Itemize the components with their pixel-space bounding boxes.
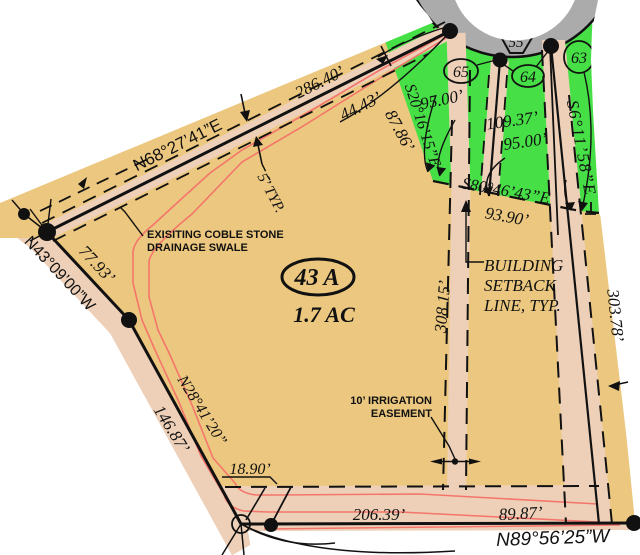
svg-text:64: 64 <box>520 69 536 86</box>
svg-text:65: 65 <box>453 64 469 81</box>
svg-text:BUILDING: BUILDING <box>484 256 563 275</box>
svg-text:43 A: 43 A <box>293 265 339 291</box>
svg-text:206.39’: 206.39’ <box>353 505 406 524</box>
svg-text:EASEMENT: EASEMENT <box>371 408 432 420</box>
svg-text:1.7 AC: 1.7 AC <box>293 302 355 327</box>
svg-text:EXISITING COBLE STONE: EXISITING COBLE STONE <box>147 229 284 241</box>
svg-text:N89°56’25”W: N89°56’25”W <box>496 526 612 551</box>
svg-text:LINE, TYP.: LINE, TYP. <box>483 296 561 315</box>
svg-text:89.87’: 89.87’ <box>498 503 543 524</box>
svg-text:18.90’: 18.90’ <box>229 461 270 478</box>
svg-text:10’ IRRIGATION: 10’ IRRIGATION <box>350 395 432 407</box>
svg-text:DRAINAGE SWALE: DRAINAGE SWALE <box>147 242 248 254</box>
svg-text:SETBACK: SETBACK <box>484 276 557 295</box>
svg-text:63: 63 <box>571 50 587 67</box>
